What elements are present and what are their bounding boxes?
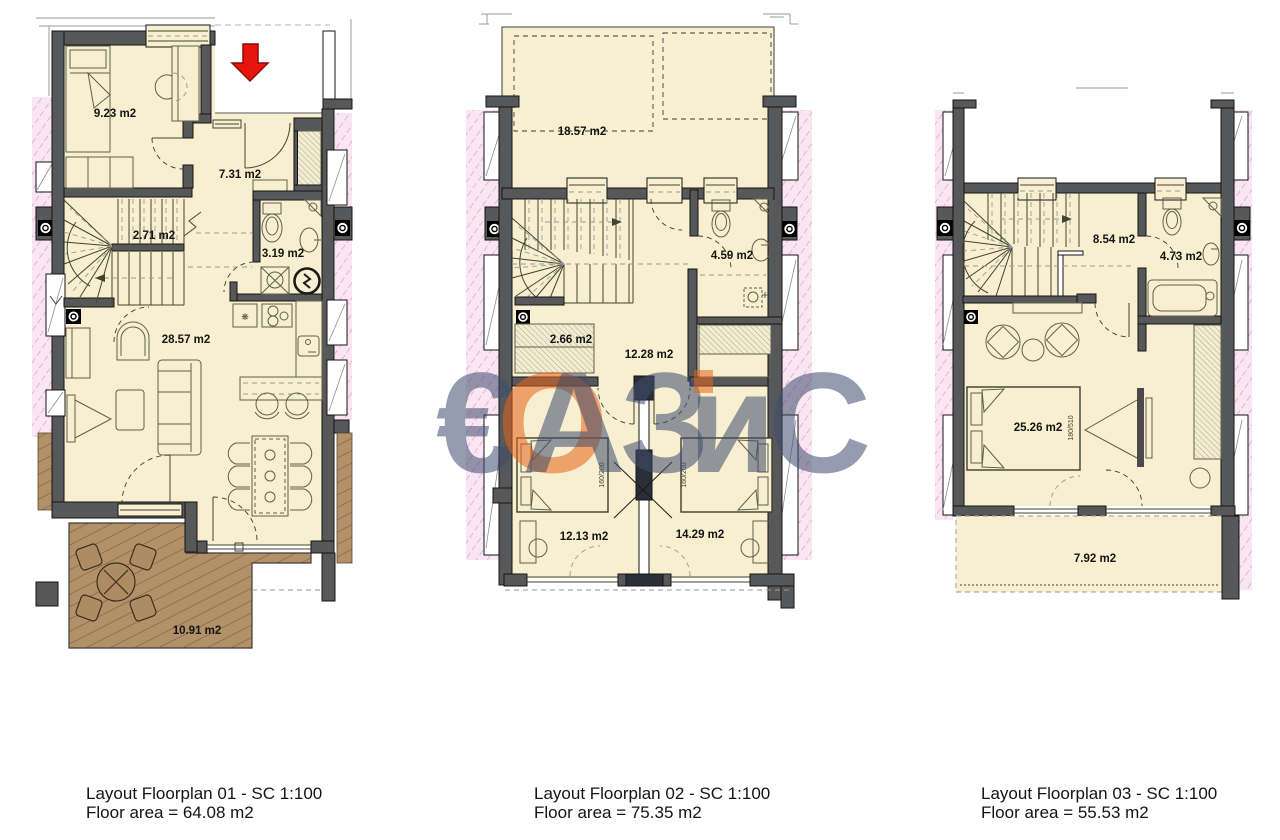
svg-text:А: А [522, 344, 625, 503]
svg-text:14.29 m2: 14.29 m2 [676, 529, 725, 541]
svg-text:12.13 m2: 12.13 m2 [560, 531, 609, 543]
svg-text:8.54 m2: 8.54 m2 [1093, 234, 1135, 246]
svg-text:и: и [688, 344, 776, 503]
svg-text:Layout Floorplan 02 - SC 1:100: Layout Floorplan 02 - SC 1:100 [534, 784, 770, 803]
svg-text:4.73 m2: 4.73 m2 [1160, 251, 1202, 263]
svg-text:Layout Floorplan 01 - SC 1:100: Layout Floorplan 01 - SC 1:100 [86, 784, 322, 803]
svg-text:7.92 m2: 7.92 m2 [1074, 553, 1116, 565]
svg-text:10.91 m2: 10.91 m2 [173, 625, 222, 637]
svg-text:3.19 m2: 3.19 m2 [262, 248, 304, 260]
svg-text:18.57 m2: 18.57 m2 [558, 126, 607, 138]
svg-text:7.31 m2: 7.31 m2 [219, 169, 261, 181]
svg-text:25.26 m2: 25.26 m2 [1014, 422, 1063, 434]
svg-text:9.23 m2: 9.23 m2 [94, 108, 136, 120]
svg-text:180/510: 180/510 [1068, 415, 1075, 440]
svg-text:❋: ❋ [241, 312, 249, 322]
svg-text:4.59 m2: 4.59 m2 [711, 250, 753, 262]
svg-text:Floor area = 75.35 m2: Floor area = 75.35 m2 [534, 803, 702, 822]
svg-text:Floor area = 55.53 m2: Floor area = 55.53 m2 [981, 803, 1149, 822]
svg-text:Layout Floorplan 03 - SC 1:100: Layout Floorplan 03 - SC 1:100 [981, 784, 1217, 803]
svg-text:28.57 m2: 28.57 m2 [162, 334, 211, 346]
svg-text:2.71 m2: 2.71 m2 [133, 230, 175, 242]
svg-text:С: С [768, 344, 871, 503]
svg-text:Floor area = 64.08 m2: Floor area = 64.08 m2 [86, 803, 254, 822]
